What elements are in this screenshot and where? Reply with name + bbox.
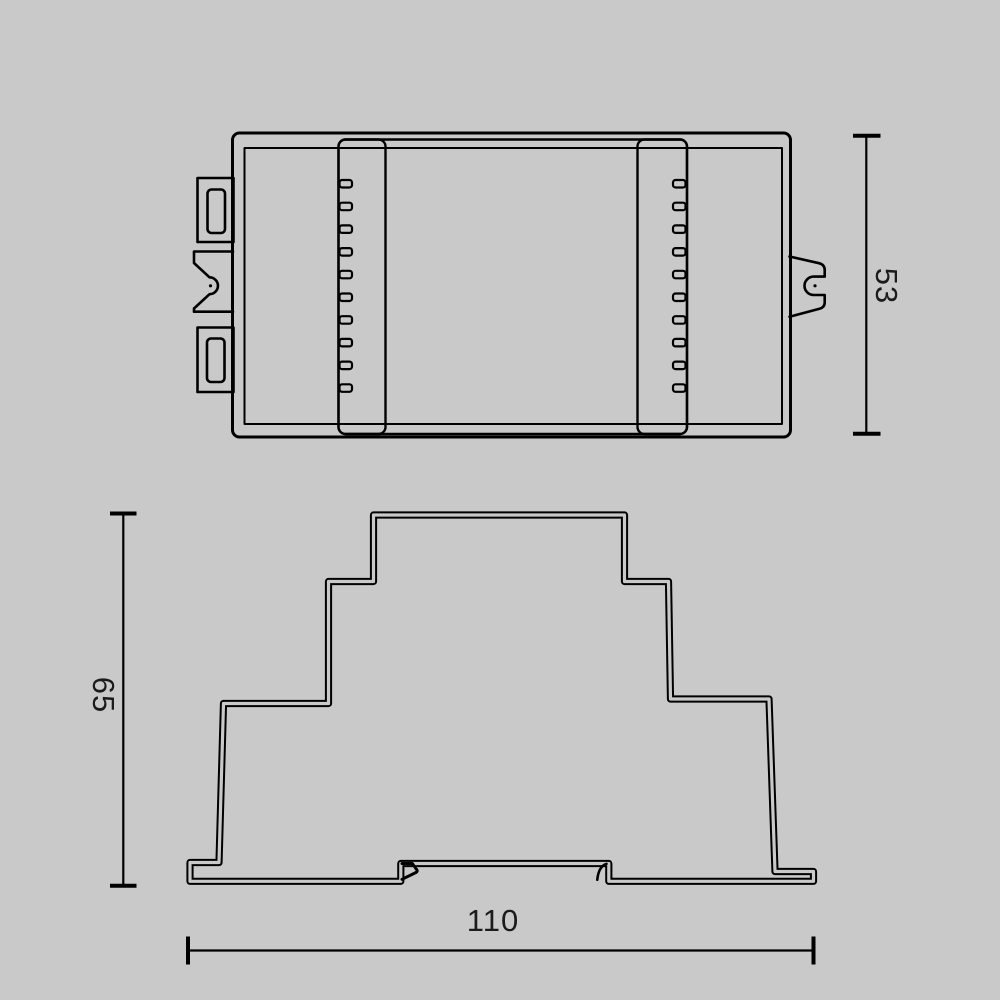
terminal-rib (673, 271, 686, 279)
terminal-rib (340, 248, 353, 256)
terminal-rib (340, 339, 353, 347)
terminal-rib (673, 339, 686, 347)
terminal-rib (673, 203, 686, 211)
terminal-rib (340, 294, 353, 302)
terminal-rib (673, 362, 686, 370)
terminal-rib (673, 225, 686, 233)
pilot-hole (813, 284, 816, 287)
pilot-hole (209, 284, 212, 287)
drawing-background (0, 0, 1000, 1000)
technical-drawing-canvas: 53 65 110 (0, 0, 1000, 1000)
terminal-rib (340, 316, 353, 324)
terminal-rib (340, 271, 353, 279)
terminal-rib (673, 180, 686, 188)
terminal-rib (340, 384, 353, 392)
terminal-rib (673, 294, 686, 302)
terminal-rib (673, 384, 686, 392)
terminal-rib (673, 248, 686, 256)
dimension-label-110: 110 (467, 903, 519, 938)
terminal-rib (673, 316, 686, 324)
dimension-label-53: 53 (869, 268, 904, 304)
terminal-rib (340, 203, 353, 211)
terminal-rib (340, 362, 353, 370)
terminal-rib (340, 180, 353, 188)
dimension-label-65: 65 (86, 677, 121, 713)
terminal-rib (340, 225, 353, 233)
